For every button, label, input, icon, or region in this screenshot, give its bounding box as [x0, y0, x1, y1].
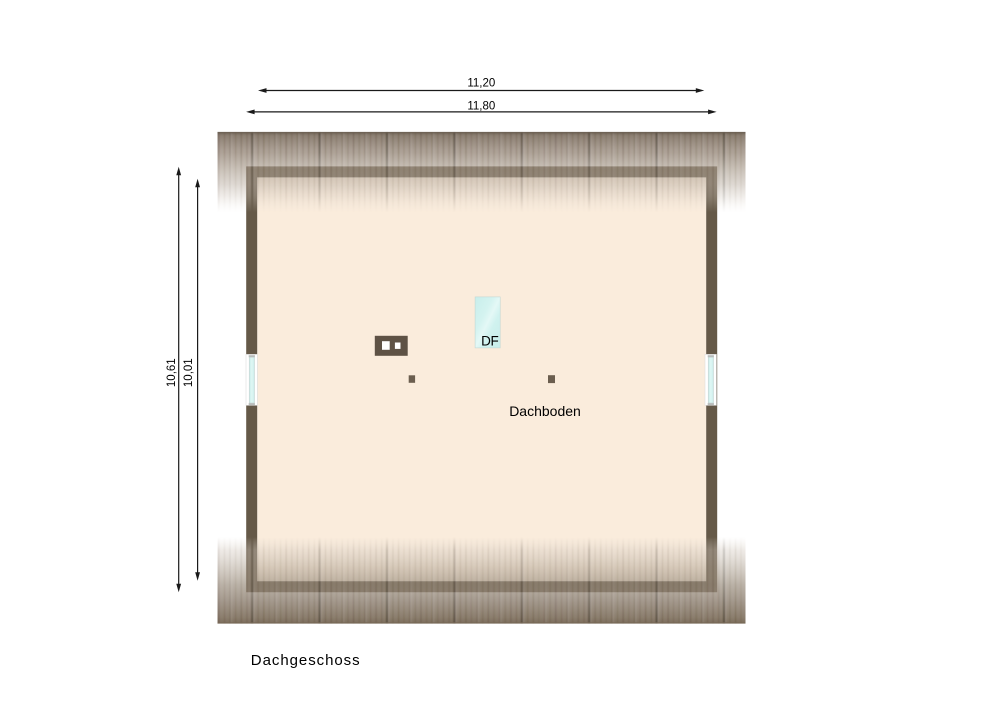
- svg-text:10,01: 10,01: [183, 358, 195, 387]
- svg-text:10,61: 10,61: [166, 358, 178, 387]
- svg-text:Dachboden: Dachboden: [509, 403, 581, 419]
- svg-text:DF: DF: [481, 333, 498, 348]
- svg-text:Dachgeschoss: Dachgeschoss: [251, 652, 361, 669]
- svg-text:11,80: 11,80: [467, 100, 495, 112]
- svg-text:11,20: 11,20: [467, 78, 495, 90]
